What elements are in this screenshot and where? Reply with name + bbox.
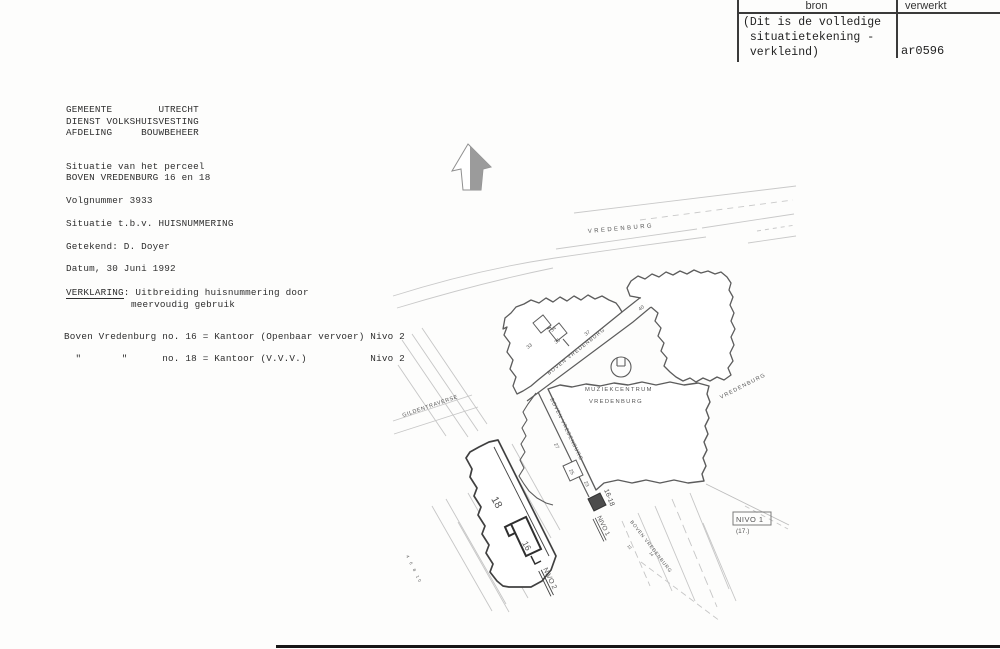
scanned-situation-drawing-page: bron verwerkt (Dit is de volledige situa… xyxy=(0,0,1000,649)
building-18-16-outline xyxy=(466,440,556,587)
building-block-northwest xyxy=(503,295,622,394)
faint-road-lines-top xyxy=(393,186,796,308)
street-label-gildentraverse: GILDENTRAVERSE xyxy=(402,394,459,419)
nivo-1-rotated: NIVO 1 xyxy=(593,515,612,542)
nivo-1-box-label: NIVO 1 xyxy=(736,515,764,524)
muziekcentrum-label-line2: VREDENBURG xyxy=(589,399,643,405)
tiny-house-numbers: 4 6 8 10 xyxy=(405,554,423,584)
house-number-40: 40 xyxy=(638,304,646,312)
building-block-northeast xyxy=(627,270,735,382)
nivo-1-box: NIVO 1 (17.) xyxy=(733,512,771,535)
road-hatching-right xyxy=(622,484,789,621)
street-label-boven-vredenburg-se: BOVEN VREDENBURG xyxy=(628,520,673,575)
street-label-vredenburg-top: VREDENBURG xyxy=(588,223,655,235)
muziekcentrum-label-line1: MUZIEKCENTRUM xyxy=(585,387,653,393)
section-symbol-icon xyxy=(611,357,631,377)
house-number-27: 27 xyxy=(552,442,560,450)
entrance-16-18-square xyxy=(588,493,606,511)
site-plan-drawing: NIVO 1 (17.) VREDENBURG VREDENBURG GILDE… xyxy=(0,0,1000,649)
north-arrow-icon xyxy=(452,144,491,190)
nivo-1-box-sub: (17.) xyxy=(736,528,749,535)
bottom-rule xyxy=(276,645,1000,648)
